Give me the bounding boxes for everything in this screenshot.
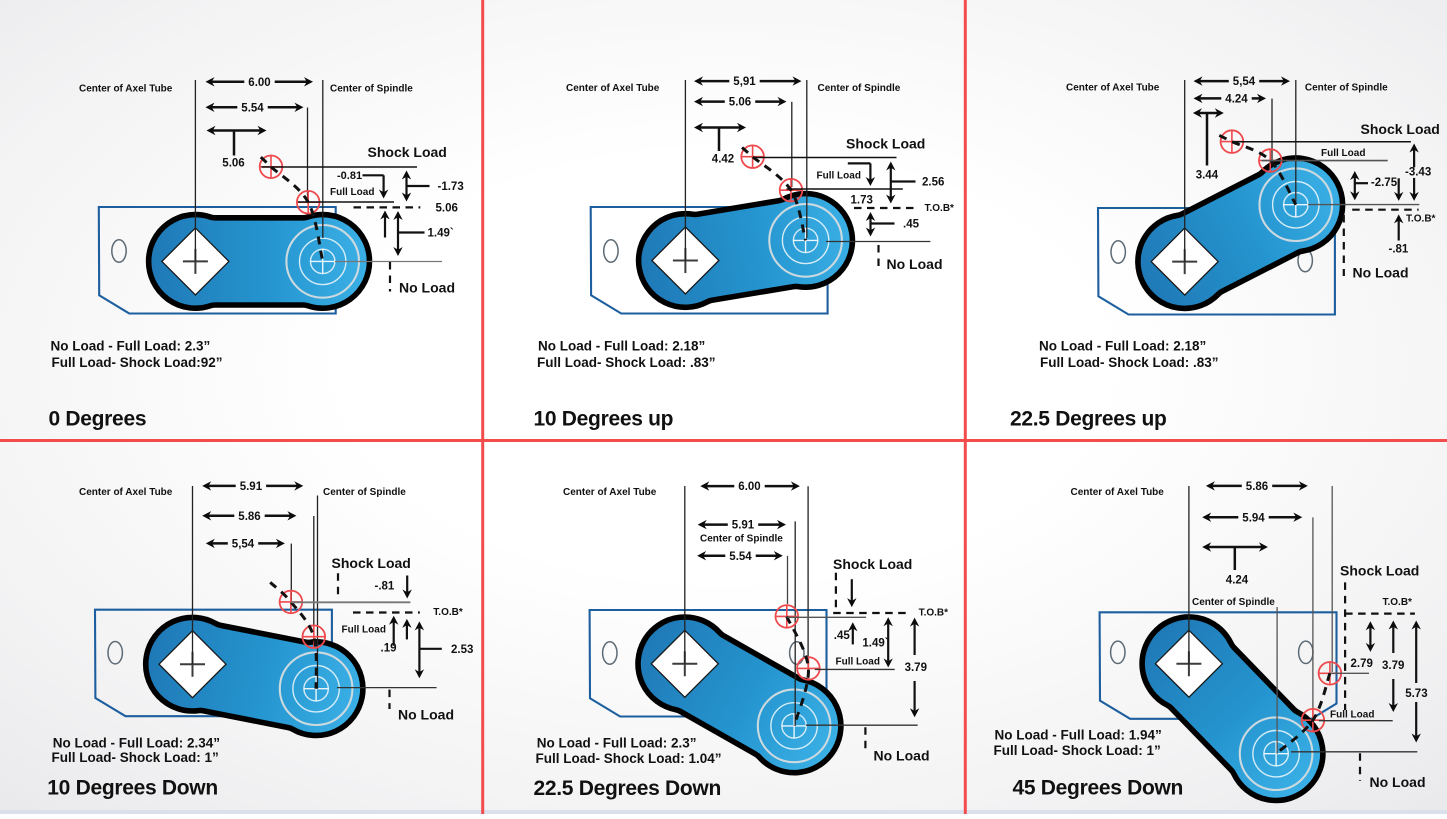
svg-text:0 Degrees: 0 Degrees [49,408,147,431]
svg-text:Center of Axel Tube: Center of Axel Tube [79,487,173,498]
svg-text:Shock Load: Shock Load [1361,121,1440,137]
svg-text:Full Load: Full Load [836,657,880,668]
svg-text:10 Degrees up: 10 Degrees up [534,408,674,431]
svg-text:No Load - Full Load: 2.3”: No Load - Full Load: 2.3” [537,736,697,751]
svg-text:.45: .45 [834,630,851,642]
svg-text:No Load - Full Load: 2.34”: No Load - Full Load: 2.34” [53,736,220,751]
svg-text:T.O.B*: T.O.B* [433,607,463,618]
svg-text:22.5 Degrees up: 22.5 Degrees up [1010,408,1167,431]
svg-text:-3.43: -3.43 [1405,167,1431,179]
svg-text:10 Degrees Down: 10 Degrees Down [47,777,218,800]
svg-text:1.73: 1.73 [851,195,873,207]
svg-text:T.O.B*: T.O.B* [1383,597,1413,608]
svg-text:No Load: No Load [1353,265,1409,281]
svg-text:Shock Load: Shock Load [846,136,925,152]
svg-text:Full Load- Shock Load:92”: Full Load- Shock Load:92” [52,355,223,370]
svg-text:-.81: -.81 [1389,244,1409,256]
svg-text:6.00: 6.00 [738,481,760,493]
svg-text:-.81: -.81 [375,581,395,593]
svg-text:6.00: 6.00 [248,77,270,89]
svg-text:-2.75: -2.75 [1371,177,1398,189]
svg-text:-1.73: -1.73 [438,181,464,193]
svg-text:5.94: 5.94 [1242,512,1265,524]
svg-text:2.56: 2.56 [922,177,944,189]
svg-text:4.24: 4.24 [1226,575,1249,587]
svg-text:5.91: 5.91 [732,520,755,532]
svg-text:5.06: 5.06 [436,203,458,215]
svg-text:No Load: No Load [887,256,943,272]
svg-text:1.49`: 1.49` [862,638,888,650]
svg-text:T.O.B*: T.O.B* [919,608,949,619]
svg-text:Full Load- Shock Load: .83”: Full Load- Shock Load: .83” [1040,355,1219,370]
svg-text:4.42: 4.42 [712,154,734,166]
svg-text:5,54: 5,54 [232,539,255,551]
svg-text:5.86: 5.86 [238,511,260,523]
svg-text:Shock Load: Shock Load [833,556,912,572]
svg-text:Full Load- Shock Load: .83”: Full Load- Shock Load: .83” [537,355,716,370]
svg-text:No Load - Full Load: 2.3”: No Load - Full Load: 2.3” [51,339,211,354]
svg-text:Center of Axel Tube: Center of Axel Tube [1066,83,1160,94]
svg-text:Full Load- Shock Load: 1.04”: Full Load- Shock Load: 1.04” [536,751,722,766]
svg-text:5.54: 5.54 [729,551,752,563]
svg-text:T.O.B*: T.O.B* [925,203,955,214]
svg-text:Center of Axel Tube: Center of Axel Tube [563,487,657,498]
svg-text:45 Degrees Down: 45 Degrees Down [1013,777,1184,800]
svg-text:5,91: 5,91 [733,76,756,88]
svg-text:5.06: 5.06 [729,97,751,109]
svg-text:-0.81: -0.81 [337,170,362,182]
svg-text:.45: .45 [903,219,920,231]
svg-text:No Load: No Load [874,748,930,764]
svg-text:2.79: 2.79 [1351,658,1373,670]
svg-text:No Load - Full Load: 2.18”: No Load - Full Load: 2.18” [538,339,705,354]
svg-text:3.79: 3.79 [905,662,927,674]
svg-text:Center of Spindle: Center of Spindle [1305,83,1388,94]
svg-text:5.91: 5.91 [240,481,263,493]
svg-text:Center of Axel Tube: Center of Axel Tube [1071,487,1165,498]
svg-text:No Load - Full Load: 1.94”: No Load - Full Load: 1.94” [995,728,1162,743]
svg-text:No Load - Full Load: 2.18”: No Load - Full Load: 2.18” [1039,339,1206,354]
svg-text:Shock Load: Shock Load [1340,563,1419,579]
svg-text:Full Load: Full Load [330,187,374,198]
svg-text:.19: .19 [381,643,397,655]
svg-text:Full Load- Shock Load: 1”: Full Load- Shock Load: 1” [52,750,219,765]
svg-text:5,54: 5,54 [1233,76,1256,88]
svg-text:1.49`: 1.49` [428,228,454,240]
svg-text:T.O.B*: T.O.B* [1406,214,1436,225]
svg-text:Center of Axel Tube: Center of Axel Tube [79,84,173,95]
svg-text:Full Load: Full Load [1321,148,1365,159]
svg-text:5.06: 5.06 [222,158,244,170]
svg-text:Center of Spindle: Center of Spindle [323,487,406,498]
svg-text:Center of Spindle: Center of Spindle [700,534,783,545]
svg-text:Full Load: Full Load [342,625,386,636]
svg-text:Center of Spindle: Center of Spindle [818,83,901,94]
svg-text:22.5 Degrees Down: 22.5 Degrees Down [534,777,721,800]
svg-text:4.24: 4.24 [1225,94,1248,106]
svg-text:2.53: 2.53 [451,644,473,656]
svg-text:Full Load- Shock Load: 1”: Full Load- Shock Load: 1” [994,743,1161,758]
svg-text:Shock Load: Shock Load [368,144,447,160]
svg-text:No Load: No Load [398,707,454,723]
svg-text:No Load: No Load [1370,774,1426,790]
svg-text:Full Load: Full Load [817,171,861,182]
svg-text:3.79: 3.79 [1382,660,1404,672]
svg-text:5.73: 5.73 [1405,688,1427,700]
svg-text:3.44: 3.44 [1196,170,1219,182]
svg-text:Center of Spindle: Center of Spindle [1192,597,1275,608]
svg-text:5.86: 5.86 [1246,481,1268,493]
svg-text:Center of Axel Tube: Center of Axel Tube [566,83,660,94]
svg-text:Center of Spindle: Center of Spindle [330,84,413,95]
svg-text:No Load: No Load [399,279,455,295]
svg-text:Shock Load: Shock Load [332,555,411,571]
svg-text:Full Load: Full Load [1330,710,1374,721]
svg-text:5.54: 5.54 [241,102,264,114]
